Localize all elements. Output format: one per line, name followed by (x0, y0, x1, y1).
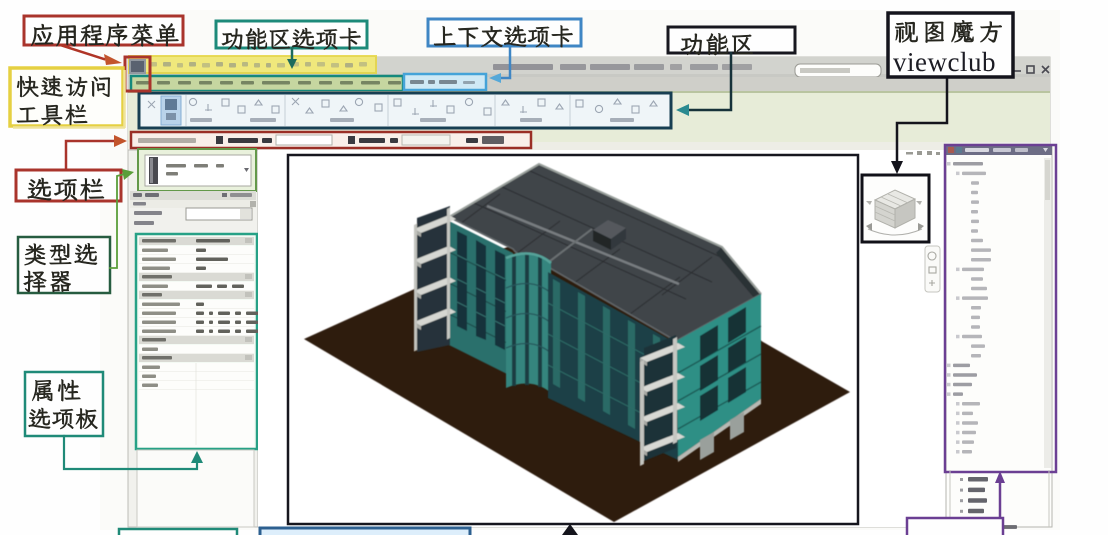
svg-text:viewclub: viewclub (893, 47, 996, 77)
